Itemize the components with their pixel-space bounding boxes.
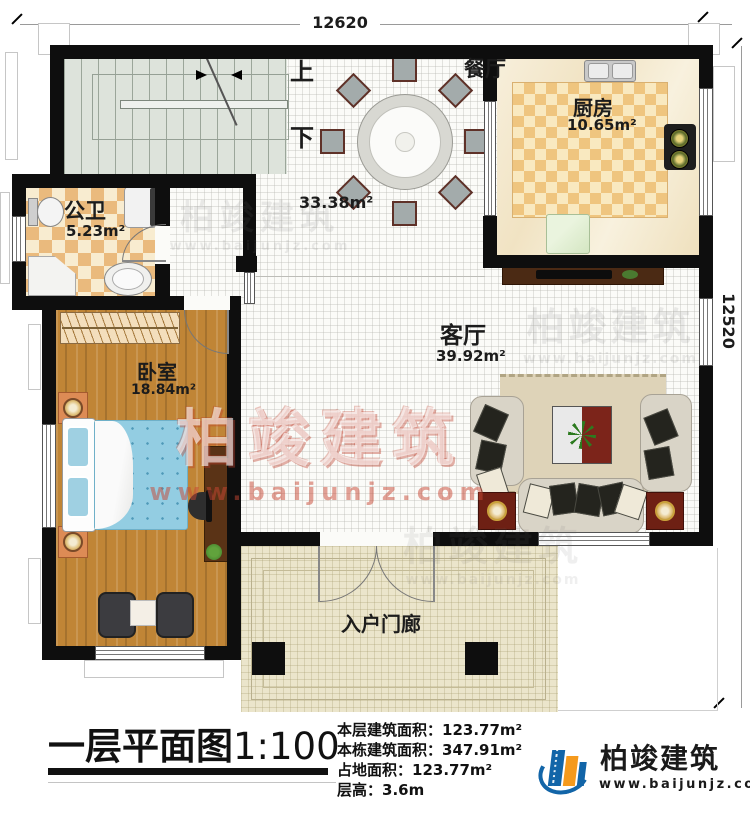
dining-table-center — [395, 132, 415, 152]
dining-chair — [392, 57, 417, 82]
wall — [50, 45, 64, 188]
info-label: 占地面积： — [337, 761, 412, 779]
door-leaf — [122, 260, 166, 262]
window — [95, 646, 205, 660]
tv-decor-plant — [622, 270, 638, 279]
building-info: 本层建筑面积：123.77m² 本栋建筑面积：347.91m² 占地面积：123… — [337, 720, 522, 800]
brand-name: 柏竣建筑 — [600, 744, 720, 773]
info-label: 本层建筑面积： — [337, 721, 442, 739]
brand-logo-icon — [538, 744, 596, 800]
floor-plan-canvas: 12620 12520 — [0, 0, 750, 814]
kitchen-sink-bowl — [588, 63, 609, 79]
exterior-sill — [5, 52, 18, 160]
door-opening — [184, 296, 230, 310]
dimension-tick — [11, 13, 22, 24]
area-label-bath: 5.23m² — [66, 224, 125, 240]
exterior-sill — [28, 324, 41, 390]
window — [699, 298, 713, 366]
nightstand-lamp — [63, 532, 83, 552]
room-label-living: 客厅 — [440, 324, 486, 348]
dimension-tick — [713, 697, 724, 708]
porch-column — [465, 642, 498, 675]
coffee-table-plant — [568, 421, 596, 449]
toilet-bowl — [37, 197, 64, 227]
nightstand-lamp — [63, 398, 83, 418]
stair-handrail — [120, 100, 288, 109]
info-value: 347.91m² — [442, 741, 522, 759]
area-label-dining: 33.38m² — [299, 195, 373, 212]
room-label-dining: 餐厅 — [464, 58, 506, 80]
area-label-bedroom: 18.84m² — [131, 383, 196, 398]
info-row: 本层建筑面积：123.77m² — [337, 720, 522, 740]
kitchen-sink-bowl — [612, 63, 633, 79]
bedroom-chair — [156, 592, 194, 638]
wall — [227, 296, 241, 660]
site-boundary-line — [558, 710, 718, 711]
wall — [236, 256, 257, 272]
area-label-living: 39.92m² — [436, 349, 506, 365]
sofa-cushion — [644, 446, 675, 480]
bathroom-sink-basin — [112, 268, 144, 290]
site-boundary-line — [717, 548, 718, 710]
plan-title-text: 一层平面图 — [48, 725, 233, 768]
info-row: 本栋建筑面积：347.91m² — [337, 740, 522, 760]
title-underline-thin — [48, 782, 336, 783]
wall — [50, 45, 713, 59]
plan-scale: 1:100 — [233, 725, 340, 768]
title-underline-bar — [48, 768, 328, 775]
door-leaf — [318, 546, 320, 602]
stove-burner — [670, 129, 689, 148]
table-lamp — [487, 501, 507, 521]
stair-direction-arrow — [196, 70, 207, 80]
wardrobe-rail — [62, 327, 178, 329]
room-label-bedroom: 卧室 — [137, 362, 177, 383]
stair-direction-arrow — [231, 70, 242, 80]
info-value: 123.77m² — [412, 761, 492, 779]
window — [538, 532, 650, 546]
logo-bar-orange — [563, 756, 579, 786]
dining-chair — [320, 129, 345, 154]
fridge — [546, 214, 590, 254]
info-label: 本栋建筑面积： — [337, 741, 442, 759]
window — [699, 88, 713, 216]
dimension-label-top: 12620 — [300, 15, 380, 32]
door-leaf — [227, 310, 229, 354]
ceiling-step-line — [256, 276, 485, 277]
info-row: 层高：3.6m — [337, 780, 522, 800]
porch-column — [252, 642, 285, 675]
bedroom-side-table — [130, 600, 156, 626]
door-opening — [320, 532, 433, 546]
room-label-porch: 入户门廊 — [341, 614, 421, 635]
exterior-sill — [84, 660, 224, 678]
plan-title: 一层平面图1:100 — [48, 716, 340, 770]
info-row: 占地面积：123.77m² — [337, 760, 522, 780]
exterior-sill — [28, 558, 41, 624]
sliding-door — [484, 101, 496, 216]
bed-pillow — [66, 476, 90, 518]
area-label-kitchen: 10.65m² — [567, 118, 637, 134]
desk-monitor — [206, 490, 212, 522]
stair-down-label: 下 — [290, 126, 314, 151]
tv — [536, 270, 612, 279]
logo-building-icon — [548, 748, 589, 788]
info-value: 3.6m — [382, 781, 424, 799]
brand-logo: 柏竣建筑 www.baijunjz.com — [538, 740, 738, 804]
dining-chair — [392, 201, 417, 226]
brand-url: www.baijunjz.com — [599, 778, 750, 792]
window — [42, 424, 56, 528]
window — [12, 216, 26, 262]
stove-burner — [670, 150, 689, 169]
wall — [12, 174, 256, 188]
info-value: 123.77m² — [442, 721, 522, 739]
half-wall-hatch — [244, 272, 255, 304]
dimension-label-right: 12520 — [719, 288, 736, 354]
dimension-tick — [697, 11, 708, 22]
table-lamp — [655, 501, 675, 521]
potted-plant — [206, 544, 222, 560]
bed-pillow — [66, 426, 90, 468]
right-dimension-line — [741, 46, 742, 708]
exterior-sill — [713, 66, 735, 162]
room-label-bath: 公卫 — [64, 200, 106, 222]
wall — [155, 186, 170, 226]
info-label: 层高： — [337, 781, 382, 799]
stair-up-label: 上 — [290, 60, 314, 85]
wall — [483, 255, 713, 268]
door-leaf — [433, 546, 435, 602]
exterior-sill — [0, 192, 10, 284]
